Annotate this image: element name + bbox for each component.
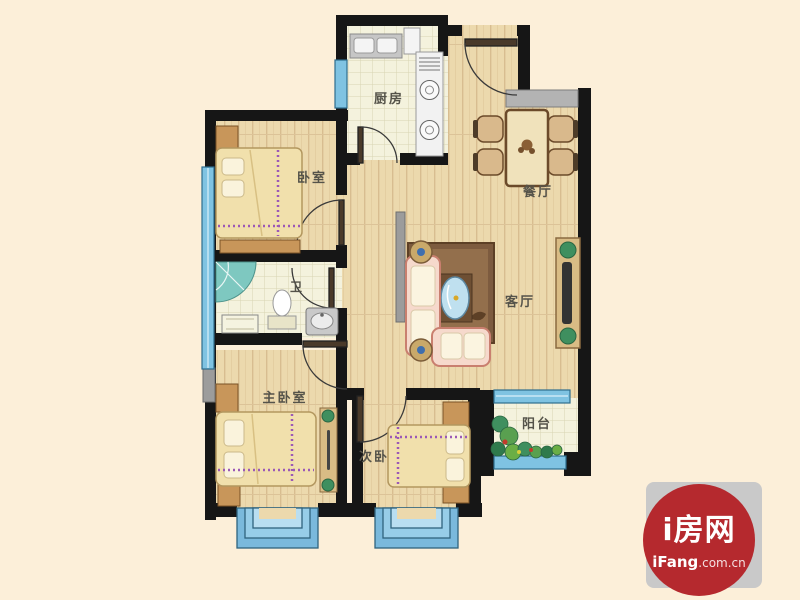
chair-back (573, 153, 578, 171)
side-table-decor (417, 346, 425, 354)
room-label-bedroom: 卧室 (297, 170, 327, 186)
nightstand (216, 384, 238, 412)
room-label-bathroom: 卫 (290, 280, 304, 294)
dining-chair (548, 116, 574, 142)
stove-burner (420, 81, 439, 100)
flower (503, 440, 508, 445)
pillow (446, 431, 464, 454)
outside-mask (530, 10, 598, 90)
faucet (320, 313, 324, 317)
wall-segment (478, 452, 494, 476)
toilet-icon (273, 290, 291, 316)
flower (517, 450, 521, 454)
toilet-tank (268, 316, 296, 329)
table-decor (454, 296, 459, 301)
pillar (396, 212, 405, 322)
ifang-domain-text: iFang.com.cn (652, 554, 746, 570)
pillow (222, 180, 244, 197)
sofa-cushion (464, 333, 485, 359)
ifang-domain-bold: iFang (652, 553, 698, 571)
room-label-master: 主卧室 (262, 390, 307, 406)
wall-segment (205, 110, 348, 121)
ifang-brand-text: i房网 (662, 516, 735, 546)
room-label-dining: 餐厅 (522, 184, 553, 200)
flower (529, 448, 533, 452)
wall-segment (564, 452, 591, 476)
chair-back (473, 120, 478, 138)
cabinet (443, 402, 469, 428)
ifang-domain-suffix: .com.cn (698, 556, 745, 570)
wall-segment (336, 162, 347, 195)
sink-basin (354, 38, 374, 53)
dining-chair (477, 116, 503, 142)
low-wall-gray (203, 368, 215, 402)
room-label-kitchen: 厨房 (374, 91, 404, 107)
pillow (222, 158, 244, 175)
dining-chair (477, 149, 503, 175)
balcony-window (494, 456, 566, 469)
chair-back (473, 153, 478, 171)
kitchen-appliance (404, 28, 420, 54)
wall-segment (337, 15, 448, 26)
bay-window-second (375, 508, 458, 548)
wall-segment (448, 25, 462, 36)
pillow (446, 458, 464, 481)
pillow (224, 452, 244, 478)
entry-counter (506, 90, 578, 107)
side-table-decor (417, 248, 425, 256)
table-centerpiece (518, 147, 524, 153)
wardrobe-handle (327, 430, 330, 470)
wall-segment (336, 153, 360, 165)
plant (322, 410, 334, 422)
dining-chair (548, 149, 574, 175)
room-label-living: 客厅 (505, 294, 535, 310)
bay-window-master (237, 508, 318, 548)
wall-segment (518, 30, 530, 92)
bench (220, 240, 300, 253)
stove-burner (420, 121, 439, 140)
floor-plan-page: 卧室 厨房 餐厅 卫 客厅 主卧室 次卧 阳台 i房网 iFang.com.cn (0, 0, 800, 600)
room-label-second: 次卧 (359, 449, 389, 465)
room-label-balcony: 阳台 (522, 416, 552, 432)
stove-counter (416, 52, 443, 156)
sofa-cushion (411, 266, 435, 306)
tv-screen (562, 262, 572, 324)
sink-basin (377, 38, 397, 53)
ifang-logo: i房网 iFang.com.cn (643, 484, 755, 596)
plant (560, 242, 576, 258)
sofa-cushion (441, 333, 462, 359)
wall-segment (318, 503, 376, 517)
pillow (224, 420, 244, 446)
plant (322, 479, 334, 491)
table-centerpiece (529, 148, 535, 154)
bathtub (222, 315, 258, 333)
plant (560, 328, 576, 344)
wall-segment (205, 333, 302, 345)
chair-back (573, 120, 578, 138)
wall-segment (456, 503, 482, 517)
wall-segment (336, 308, 347, 515)
window-kitchen (335, 60, 347, 108)
